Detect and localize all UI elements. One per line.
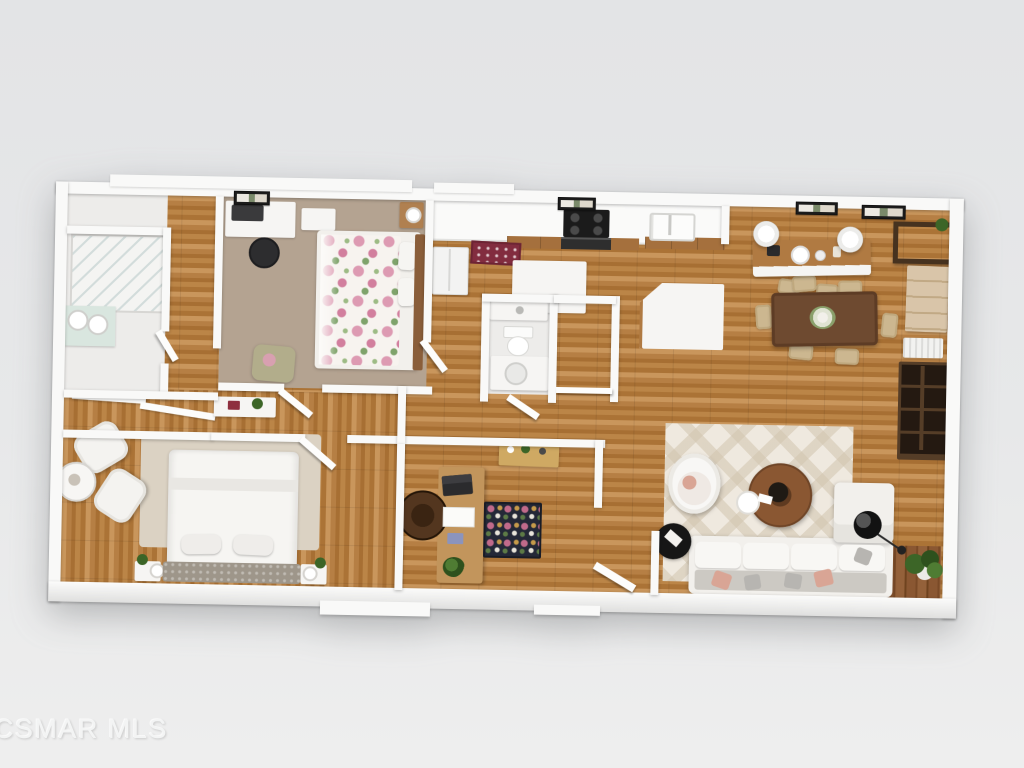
tile-floor-linen-closet	[67, 194, 168, 228]
walk-in-shower	[70, 234, 169, 314]
pillow	[398, 278, 415, 306]
interior-wall	[397, 386, 406, 444]
entry-console-table	[893, 221, 958, 264]
sink-divider	[668, 215, 671, 235]
hutch-cabinet	[905, 265, 949, 332]
watermark-csmar-mls: CSMAR MLS	[0, 714, 168, 745]
office-floral-rug	[483, 502, 542, 559]
gas-cooktop	[563, 209, 610, 238]
tufted-headboard	[162, 561, 300, 584]
dining-chair	[792, 275, 817, 293]
interior-wall	[482, 294, 558, 303]
radiator	[903, 338, 943, 359]
interior-wall	[554, 295, 616, 304]
interior-wall	[594, 440, 603, 508]
arc-lamp-base	[897, 546, 906, 555]
pillow	[181, 534, 221, 555]
hall-console	[214, 396, 276, 417]
prep-island	[639, 283, 724, 351]
double-basin-sink	[649, 213, 696, 242]
closet-sliding-door	[556, 387, 612, 394]
sofa-cushion	[791, 544, 837, 571]
notebook	[447, 533, 463, 544]
interior-wall	[721, 206, 730, 244]
oven-front	[561, 237, 611, 250]
sofa-cushion	[743, 543, 789, 570]
wall-art	[796, 202, 838, 216]
dining-chair	[834, 348, 859, 365]
decor-item	[507, 446, 514, 453]
wall-art	[558, 197, 596, 211]
dining-chair	[880, 313, 898, 339]
interior-wall	[218, 382, 284, 391]
papers	[443, 507, 475, 528]
pillow	[233, 534, 274, 556]
throw-pillow	[783, 572, 802, 589]
sofa-cushion	[695, 542, 741, 569]
wall-art	[862, 205, 906, 220]
duvet-fold	[168, 478, 298, 492]
porch-step	[320, 600, 430, 616]
wall-shelf	[301, 208, 335, 231]
wall-art	[234, 191, 270, 206]
roof-section	[434, 183, 514, 195]
monitor	[231, 205, 263, 222]
interior-wall	[650, 531, 659, 595]
duvet-fold	[319, 234, 339, 364]
red-books	[228, 401, 240, 410]
screenshot-canvas: CSMAR MLS	[0, 0, 1024, 768]
porch-step	[534, 605, 600, 616]
throw-pillow	[743, 574, 761, 591]
dining-chair	[755, 304, 773, 329]
laptop	[442, 474, 474, 496]
floor-plan	[48, 181, 964, 618]
